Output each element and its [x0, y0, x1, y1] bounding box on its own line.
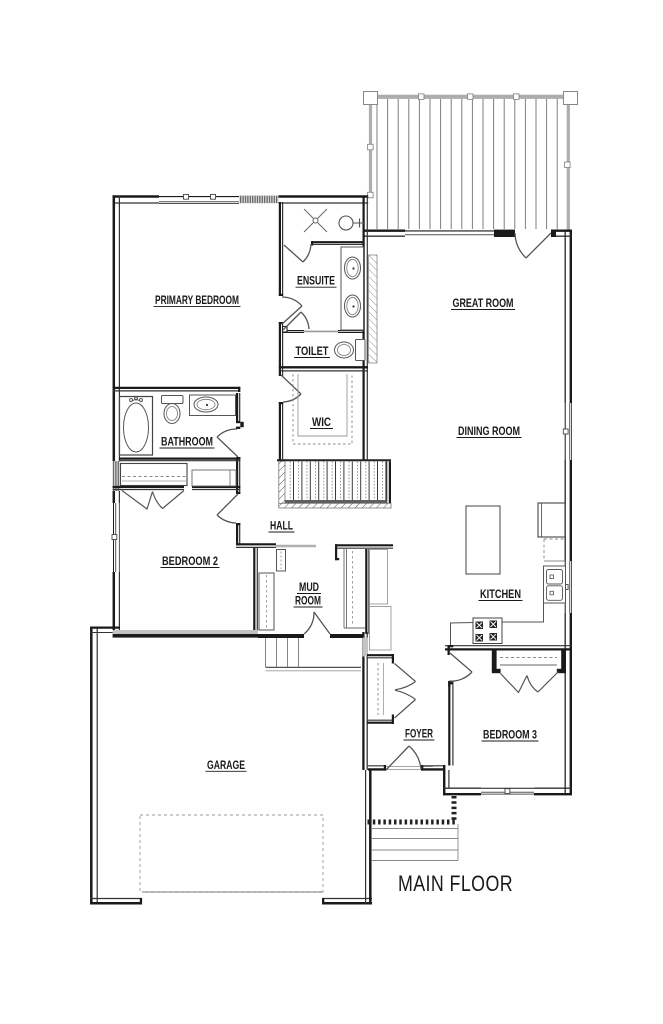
svg-text:DINING ROOM: DINING ROOM — [458, 424, 520, 438]
svg-text:BATHROOM: BATHROOM — [161, 435, 213, 449]
svg-text:MAIN FLOOR: MAIN FLOOR — [398, 871, 513, 896]
svg-text:HALL: HALL — [270, 519, 293, 533]
svg-text:BEDROOM 3: BEDROOM 3 — [483, 728, 537, 742]
svg-text:GARAGE: GARAGE — [207, 758, 245, 772]
svg-text:FOYER: FOYER — [405, 727, 433, 741]
svg-text:MUD: MUD — [299, 580, 319, 594]
svg-text:PRIMARY BEDROOM: PRIMARY BEDROOM — [155, 293, 239, 307]
svg-text:WIC: WIC — [312, 415, 331, 429]
svg-text:ENSUITE: ENSUITE — [297, 273, 335, 287]
svg-text:KITCHEN: KITCHEN — [480, 587, 521, 601]
svg-text:TOILET: TOILET — [296, 344, 329, 358]
svg-text:BEDROOM 2: BEDROOM 2 — [162, 554, 218, 568]
svg-text:ROOM: ROOM — [295, 594, 321, 608]
svg-text:GREAT ROOM: GREAT ROOM — [453, 296, 514, 310]
